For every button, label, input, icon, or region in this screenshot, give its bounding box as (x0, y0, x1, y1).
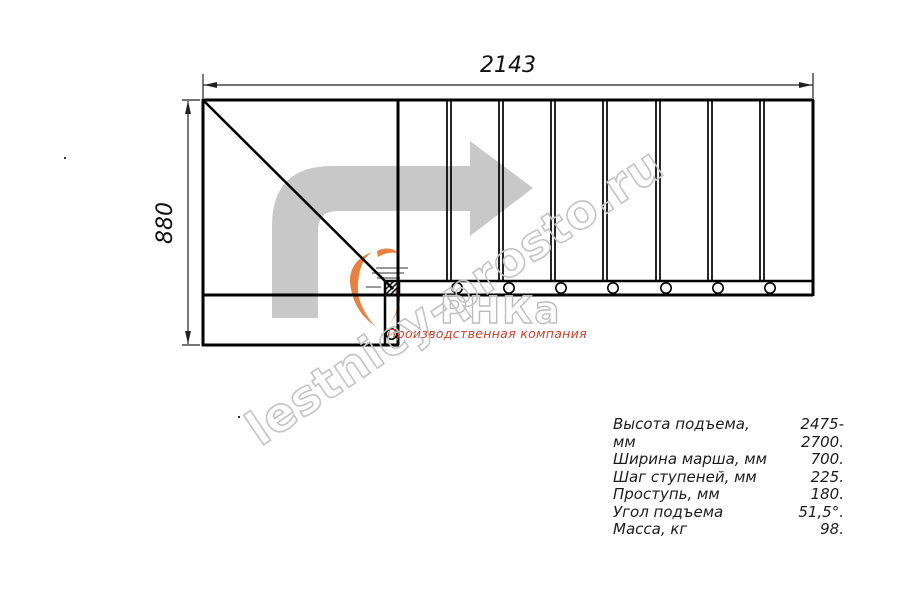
speck (64, 157, 66, 159)
swoosh-top-flame (377, 249, 398, 257)
spec-value: 51,5°. (798, 504, 844, 522)
spec-label: Шаг ступеней, мм (613, 469, 757, 487)
swoosh-left-arc (350, 252, 375, 326)
arrowhead-top (185, 101, 191, 114)
spec-row-march-width: Ширина марша, мм 700. (613, 451, 844, 469)
dimension-height-label: 880 (153, 191, 179, 255)
spec-row-angle: Угол подъема 51,5°. (613, 504, 844, 522)
spec-label: Ширина марша, мм (613, 451, 767, 469)
spec-label: Масса, кг (613, 521, 687, 539)
arrowhead-right (799, 82, 812, 88)
dimension-width-label: 2143 (408, 53, 608, 78)
spec-row-height: Высота подъема, мм 2475-2700. (613, 416, 844, 451)
arrowhead-bottom (185, 331, 191, 344)
stair-drawing-page: 2143 880 РНКа Производственная компания … (0, 0, 900, 600)
spec-row-mass: Масса, кг 98. (613, 521, 844, 539)
dimension-height (182, 100, 200, 345)
spec-value: 2475-2700. (764, 416, 844, 451)
spec-label: Угол подъема (613, 504, 723, 522)
spec-label: Высота подъема, мм (613, 416, 764, 451)
spec-value: 700. (811, 451, 844, 469)
spec-value: 225. (811, 469, 844, 487)
arrowhead-left (204, 82, 217, 88)
spec-row-step-pitch: Шаг ступеней, мм 225. (613, 469, 844, 487)
spec-label: Проступь, мм (613, 486, 720, 504)
spec-value: 180. (811, 486, 844, 504)
spec-row-tread: Проступь, мм 180. (613, 486, 844, 504)
spec-value: 98. (820, 521, 844, 539)
spec-table: Высота подъема, мм 2475-2700. Ширина мар… (613, 416, 844, 539)
